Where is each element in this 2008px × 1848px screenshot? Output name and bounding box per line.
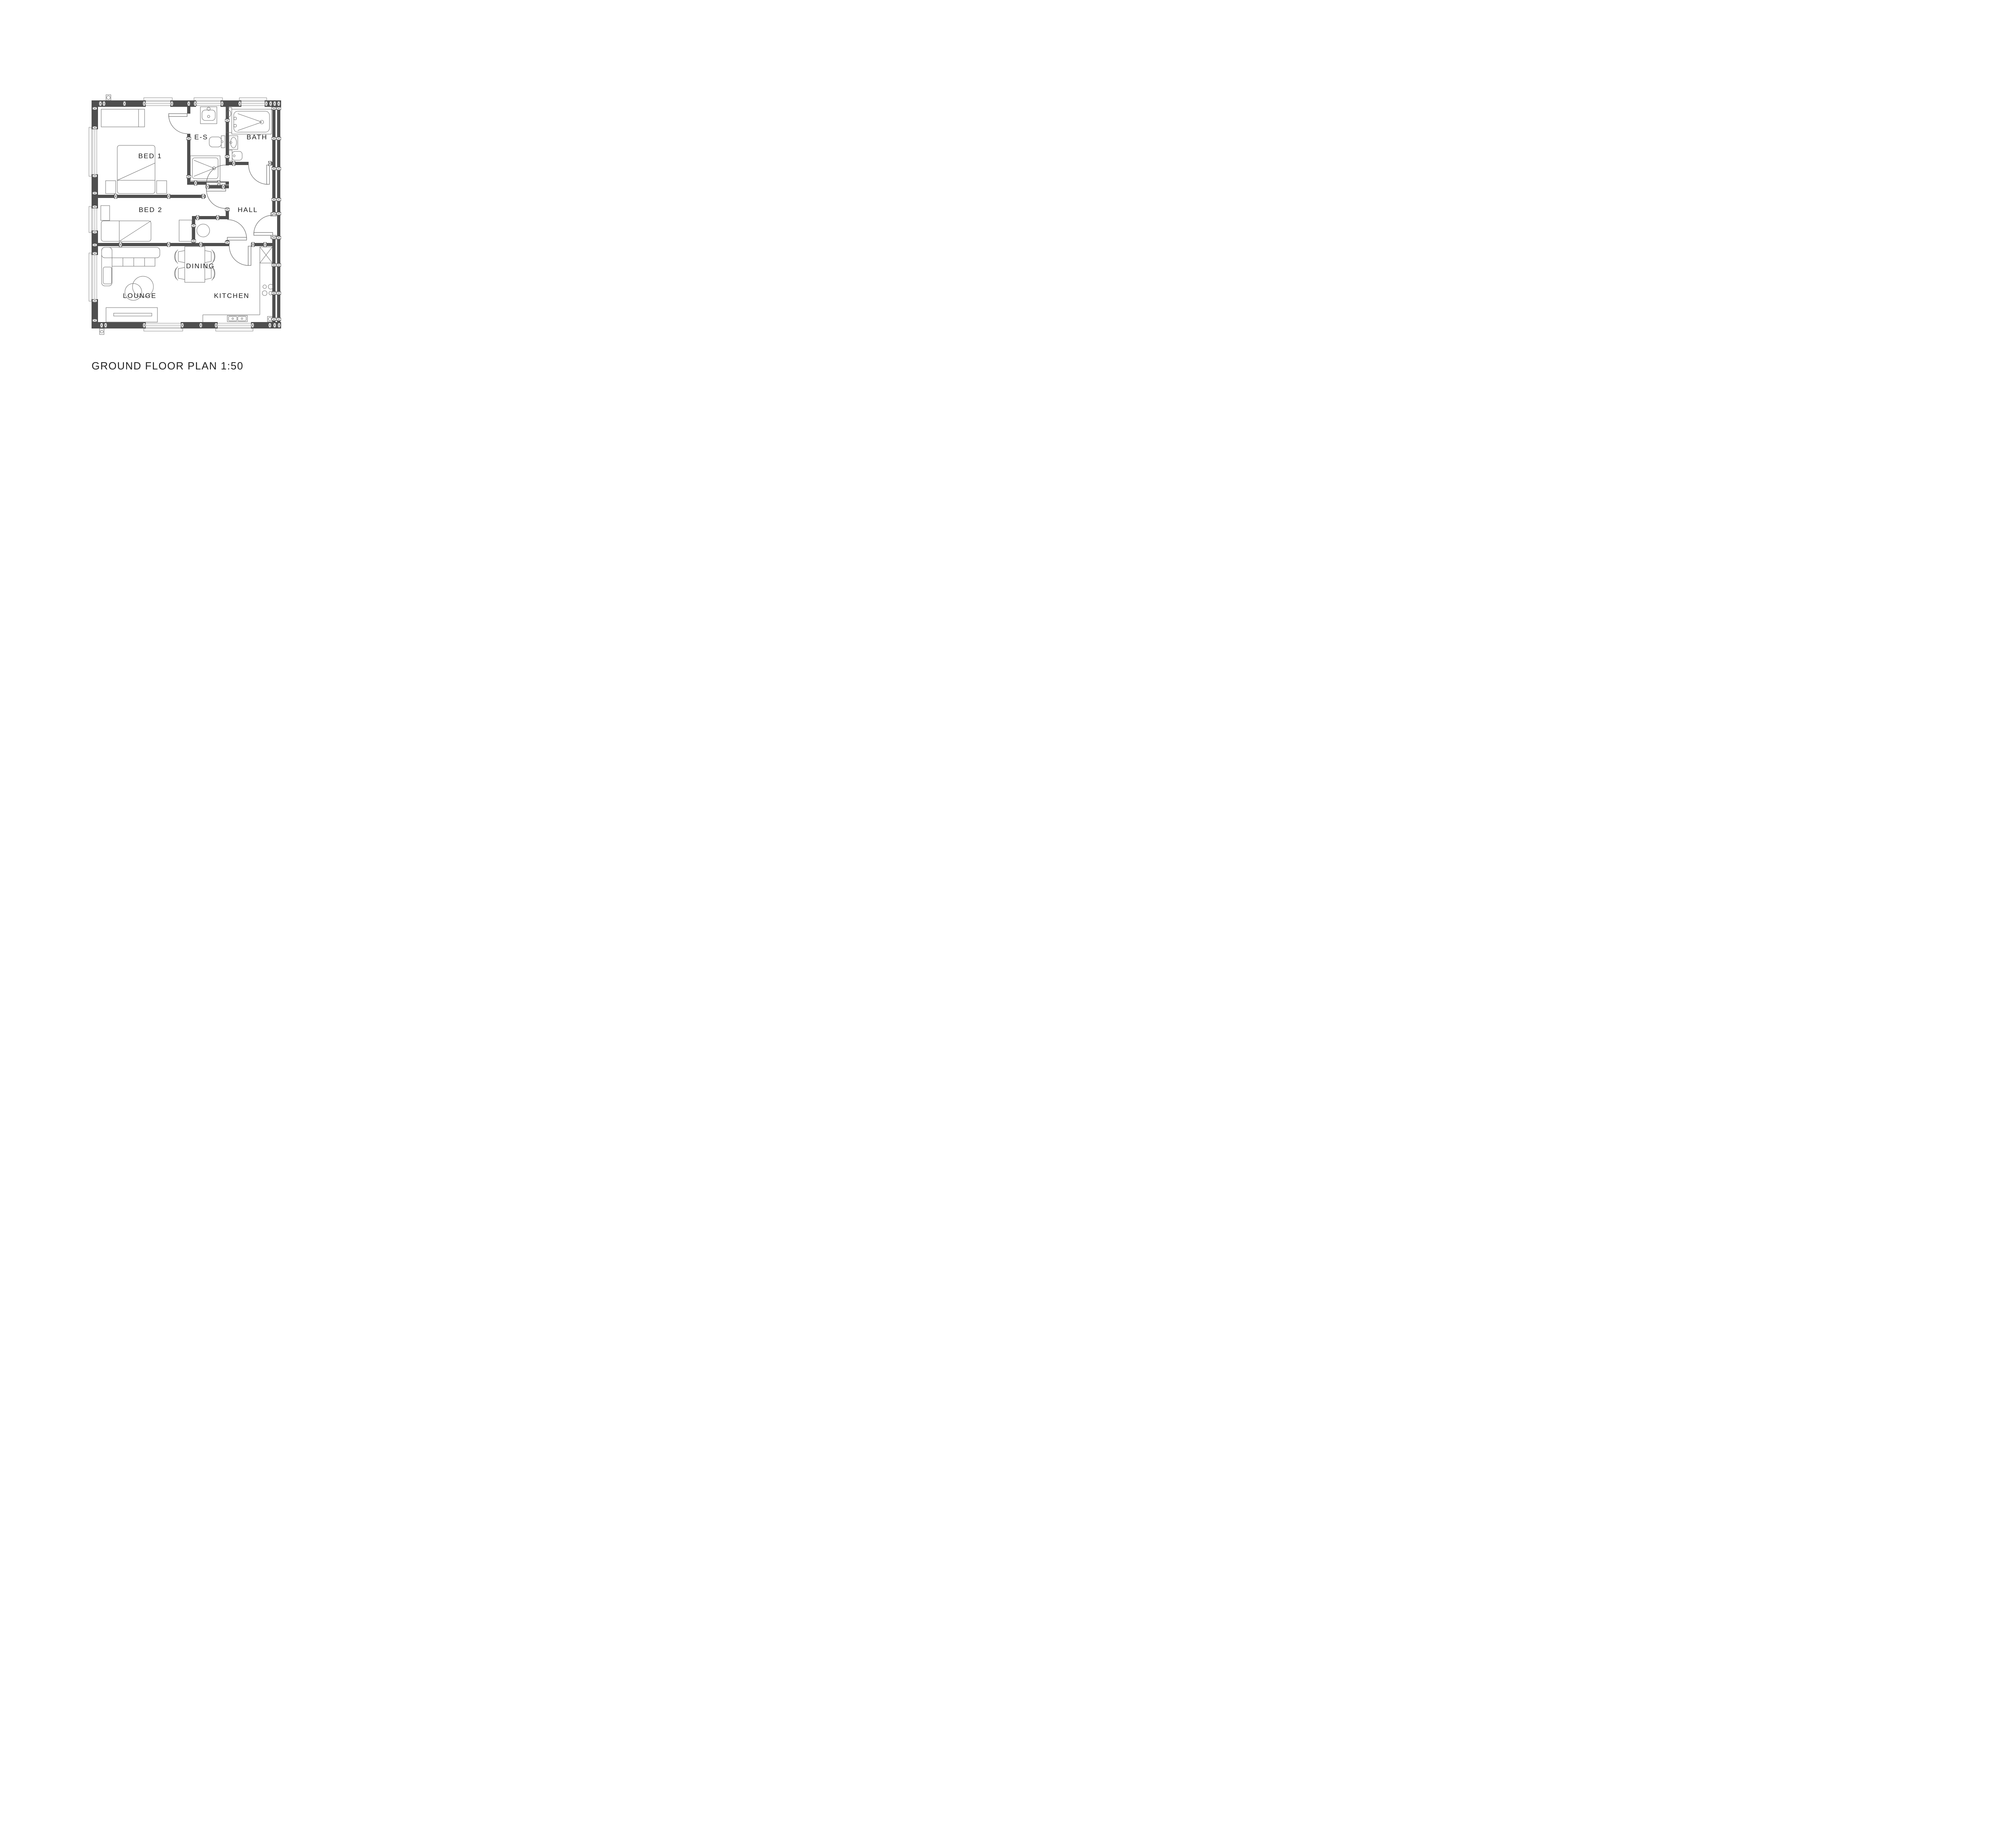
drawing-title: GROUND FLOOR PLAN 1:50 xyxy=(92,360,243,372)
room-label-ensuite: E-S xyxy=(194,133,208,141)
lounge-furniture xyxy=(102,247,160,322)
window-bed2-left xyxy=(89,206,97,233)
toilet-icon xyxy=(229,150,242,161)
dining-chair xyxy=(175,250,185,263)
window-ensuite-top xyxy=(194,98,222,106)
wall-top xyxy=(170,100,196,107)
toilet-icon xyxy=(209,136,225,148)
door-bed2 xyxy=(206,188,226,208)
desk xyxy=(179,220,192,241)
tall-unit xyxy=(260,247,272,263)
door-cupboard xyxy=(227,220,247,240)
nightstand xyxy=(106,181,116,194)
kitchen-fittings xyxy=(203,247,273,322)
bed-throw-diagonal xyxy=(119,221,151,241)
sink-icon xyxy=(227,316,247,322)
room-label-bath: BATH xyxy=(247,133,267,141)
window-bed1-top xyxy=(144,98,172,106)
airing-cupboard xyxy=(197,224,210,237)
wardrobe xyxy=(101,206,110,220)
ensuite-fixtures xyxy=(190,107,225,181)
bathtub-icon xyxy=(232,109,271,134)
floor-plan-page: BED 1 E-S BATH BED 2 HALL DINING LOUNGE … xyxy=(0,0,625,462)
hob-icon xyxy=(262,284,273,296)
wall-left xyxy=(92,174,98,208)
window-bed1-left xyxy=(89,127,97,176)
wall-left xyxy=(92,100,98,129)
window-lounge-bottom xyxy=(144,323,183,331)
door-front-entrance xyxy=(254,213,276,239)
room-label-dining: DINING xyxy=(186,262,215,270)
wall-right-inner xyxy=(272,235,275,328)
room-label-kitchen: KITCHEN xyxy=(214,292,250,300)
door-bed1 xyxy=(206,165,226,185)
window-lounge-left xyxy=(89,253,97,301)
basin-icon xyxy=(200,107,217,124)
drain-pipe-icon xyxy=(100,328,104,335)
hot-water-cylinder-icon xyxy=(197,224,210,237)
door-ensuite xyxy=(169,114,187,134)
wall-bath-bottom xyxy=(229,162,249,165)
room-label-bed1: BED 1 xyxy=(138,152,162,160)
floor-plan-canvas: BED 1 E-S BATH BED 2 HALL DINING LOUNGE … xyxy=(0,0,625,462)
dining-chair xyxy=(175,267,185,280)
wall-bed2-lounge xyxy=(98,243,229,246)
wardrobe xyxy=(101,109,145,127)
dining-chair xyxy=(205,250,215,263)
wall-bottom xyxy=(92,322,146,328)
tv-unit xyxy=(106,308,157,322)
room-label-bed2: BED 2 xyxy=(139,206,162,214)
external-pipes xyxy=(100,95,111,335)
shower-icon xyxy=(190,156,220,181)
room-label-hall: HALL xyxy=(238,206,258,214)
wall-bottom xyxy=(251,322,281,328)
wall-left xyxy=(92,230,98,255)
nightstand xyxy=(157,181,167,194)
window-kitchen-bottom xyxy=(216,323,253,331)
window-bath-top xyxy=(239,98,267,106)
door-bath xyxy=(249,165,269,184)
basin-icon xyxy=(229,136,238,149)
vent-pipe-icon xyxy=(106,95,111,100)
bed-throw-diagonal xyxy=(117,163,155,180)
single-bed xyxy=(101,221,151,241)
room-label-lounge: LOUNGE xyxy=(123,292,157,300)
bed1-furniture xyxy=(101,109,167,194)
door-kitchen xyxy=(229,246,251,265)
wall-ensuite-left xyxy=(187,107,190,114)
wall-bottom xyxy=(181,322,218,328)
